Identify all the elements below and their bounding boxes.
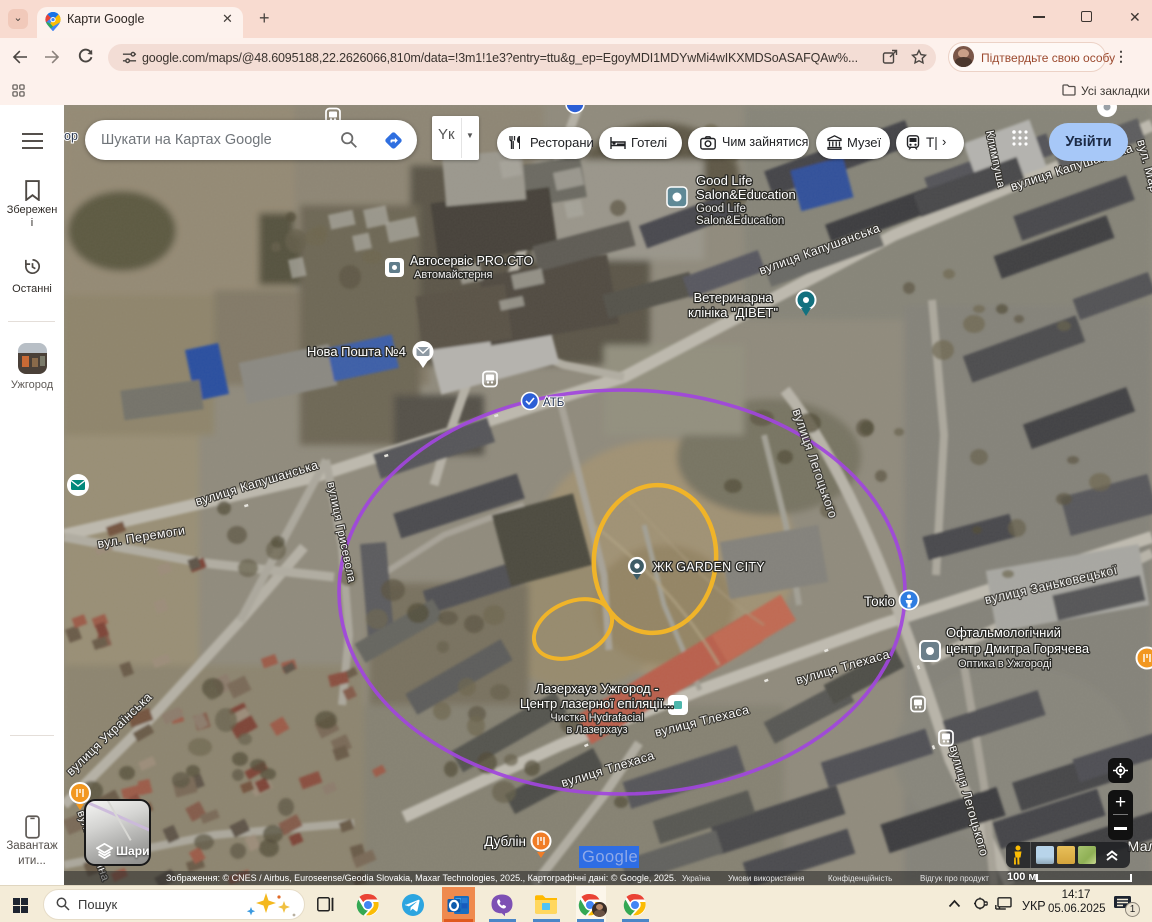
svg-text:Дублін: Дублін bbox=[484, 834, 526, 849]
svg-text:Центр лазерної епіляції...: Центр лазерної епіляції... bbox=[520, 696, 674, 711]
svg-text:Salon&Education: Salon&Education bbox=[696, 187, 796, 202]
svg-text:Автосервіс PRO.CTO: Автосервіс PRO.CTO bbox=[410, 254, 534, 268]
svg-text:ор: ор bbox=[64, 129, 78, 143]
svg-text:Ветеринарна: Ветеринарна bbox=[693, 290, 773, 305]
svg-text:АТБ: АТБ bbox=[543, 397, 564, 409]
svg-text:Good Life: Good Life bbox=[696, 203, 746, 215]
svg-text:Нова Пошта №4: Нова Пошта №4 bbox=[307, 344, 406, 359]
svg-text:центр Дмитра Горячева: центр Дмитра Горячева bbox=[946, 641, 1090, 656]
svg-text:Офтальмологічний: Офтальмологічний bbox=[946, 625, 1061, 640]
svg-text:Автомайстерня: Автомайстерня bbox=[414, 269, 493, 281]
svg-text:Оптика в Ужгороді: Оптика в Ужгороді bbox=[958, 658, 1052, 670]
svg-text:Токіо: Токіо bbox=[864, 594, 895, 609]
svg-text:ЖК GARDEN CITY: ЖК GARDEN CITY bbox=[653, 560, 765, 574]
svg-text:Лазерхауз Ужгород -: Лазерхауз Ужгород - bbox=[535, 681, 658, 696]
svg-text:Salon&Education: Salon&Education bbox=[696, 215, 784, 227]
svg-text:Good Life: Good Life bbox=[696, 173, 752, 188]
svg-text:в Лазерхауз: в Лазерхауз bbox=[566, 724, 627, 736]
svg-text:клініка "ДІВЕТ": клініка "ДІВЕТ" bbox=[688, 305, 779, 320]
svg-text:Чистка Hydrafacial: Чистка Hydrafacial bbox=[550, 712, 643, 724]
